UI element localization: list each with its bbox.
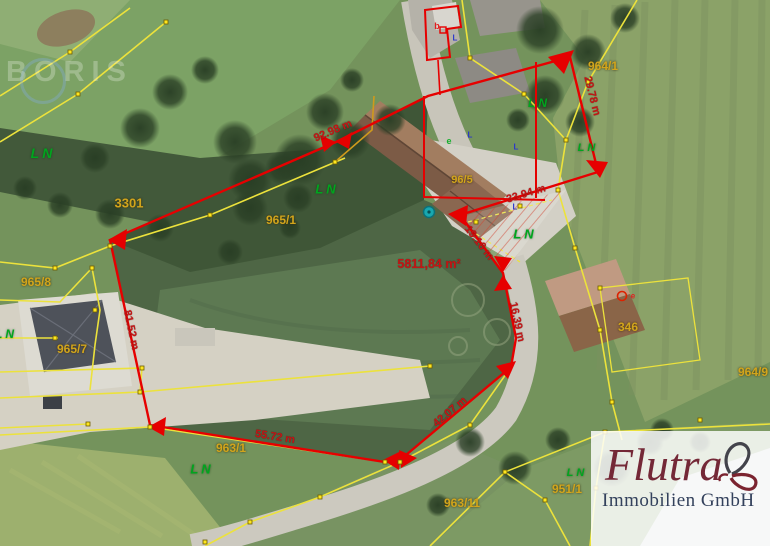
- shed: [175, 328, 215, 346]
- parked-car: [43, 396, 62, 409]
- aerial-property-map: BORIS 3301965/1964/196/5965/7965/8346963…: [0, 0, 770, 546]
- well-marker: [424, 207, 435, 218]
- watermark: BORIS: [6, 56, 133, 89]
- brand-logo-card: Flutra Immobilien GmbH: [591, 431, 770, 546]
- butterfly-icon: [708, 433, 770, 495]
